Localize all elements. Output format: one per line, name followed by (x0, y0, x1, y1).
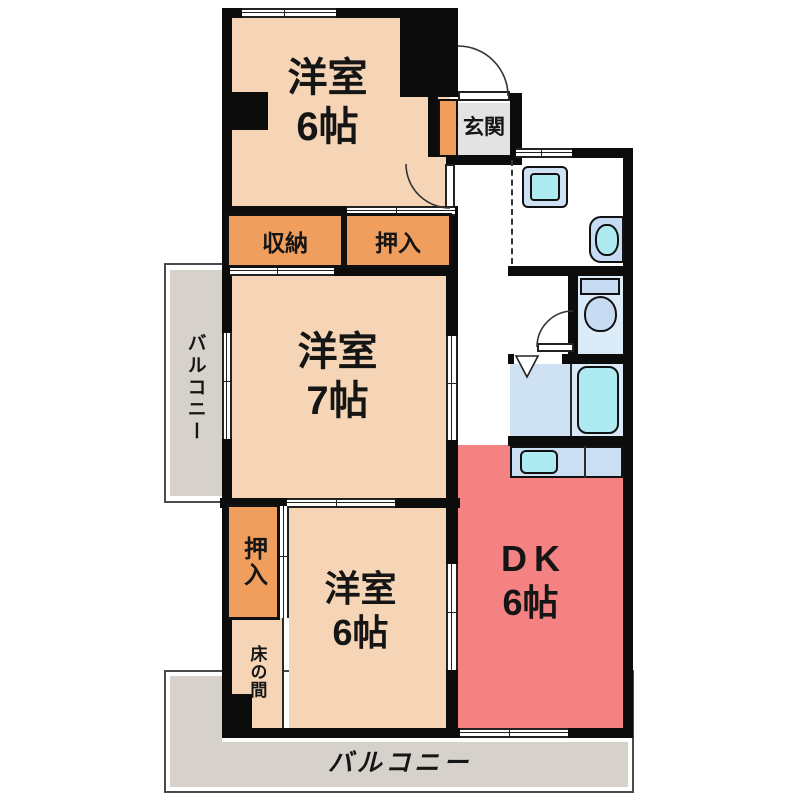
room-size: 7帖 (306, 377, 368, 426)
washing-machine-tub (530, 173, 560, 201)
wall (250, 728, 633, 738)
window-washroom (516, 148, 572, 158)
balcony-bottom-label: バルコニー (165, 744, 635, 782)
sliding-door-hall-room7 (446, 336, 458, 440)
room-western-top-label: 洋室 6帖 (230, 48, 425, 158)
balcony-left-text: バルコニー (183, 333, 206, 443)
washing-machine (522, 166, 568, 208)
room-name: DK (494, 537, 567, 581)
room-name: 洋室 (324, 567, 396, 611)
room-size: 6帖 (296, 103, 358, 152)
wall (428, 95, 438, 157)
room-name: 洋室 (288, 54, 368, 103)
sliding-door-dk-room6 (446, 564, 458, 670)
floor-plan: 収納 押入 押入 洋室 6帖 洋室 7帖 洋室 6帖 DK 6帖 (0, 0, 800, 800)
room-dk-label: DK 6帖 (458, 528, 603, 633)
kitchen-sink (520, 450, 558, 474)
room-size: 6帖 (332, 611, 388, 655)
tokonoma-text: 床の間 (246, 645, 267, 699)
closet-shunou-label: 収納 (262, 224, 308, 258)
toilet (580, 278, 620, 295)
entrance-door-arc (458, 46, 508, 96)
bath-doorway (514, 354, 562, 364)
room-western-bottom-label: 洋室 6帖 (278, 558, 443, 663)
toilet-bowl (584, 296, 617, 332)
toilet-door-leaf (537, 343, 574, 352)
bathtub (577, 366, 619, 434)
entrance-door-leaf (458, 91, 510, 101)
entrance-label: 玄関 (458, 114, 510, 142)
closet-oshiire-side: 押入 (226, 504, 280, 620)
hallway-floor (458, 157, 510, 445)
bath-divider (570, 364, 572, 438)
wall (510, 93, 522, 155)
window-top-room (242, 8, 336, 18)
room-name: 洋室 (298, 328, 378, 377)
closet-oshiire-top-label: 押入 (375, 224, 421, 258)
top-room-door-leaf (445, 164, 455, 208)
closet-shunou: 収納 (226, 213, 344, 268)
sliding-door-between-rooms (287, 498, 395, 508)
kitchen-counter-divider (584, 446, 586, 478)
wash-basin (589, 216, 624, 263)
changing-room-floor (510, 364, 570, 438)
entrance-text: 玄関 (463, 115, 505, 141)
wall (508, 436, 633, 446)
accordion-door-track (511, 160, 513, 264)
wall (508, 266, 633, 276)
room-size: 6帖 (502, 581, 558, 625)
wash-basin-bowl (595, 224, 619, 256)
balcony-left-label: バルコニー (172, 298, 218, 478)
window-balcony-left (222, 333, 232, 439)
window-dk-balcony (460, 728, 568, 738)
entrance-shoe-cabinet (438, 99, 458, 157)
closet-oshiire-side-label: 押入 (236, 536, 271, 588)
closet-oshiire-top: 押入 (344, 213, 452, 268)
balcony-bottom-text: バルコニー (328, 748, 473, 779)
tokonoma-label: 床の間 (238, 620, 274, 724)
room-western-mid-label: 洋室 7帖 (240, 322, 435, 432)
wall (446, 276, 458, 336)
